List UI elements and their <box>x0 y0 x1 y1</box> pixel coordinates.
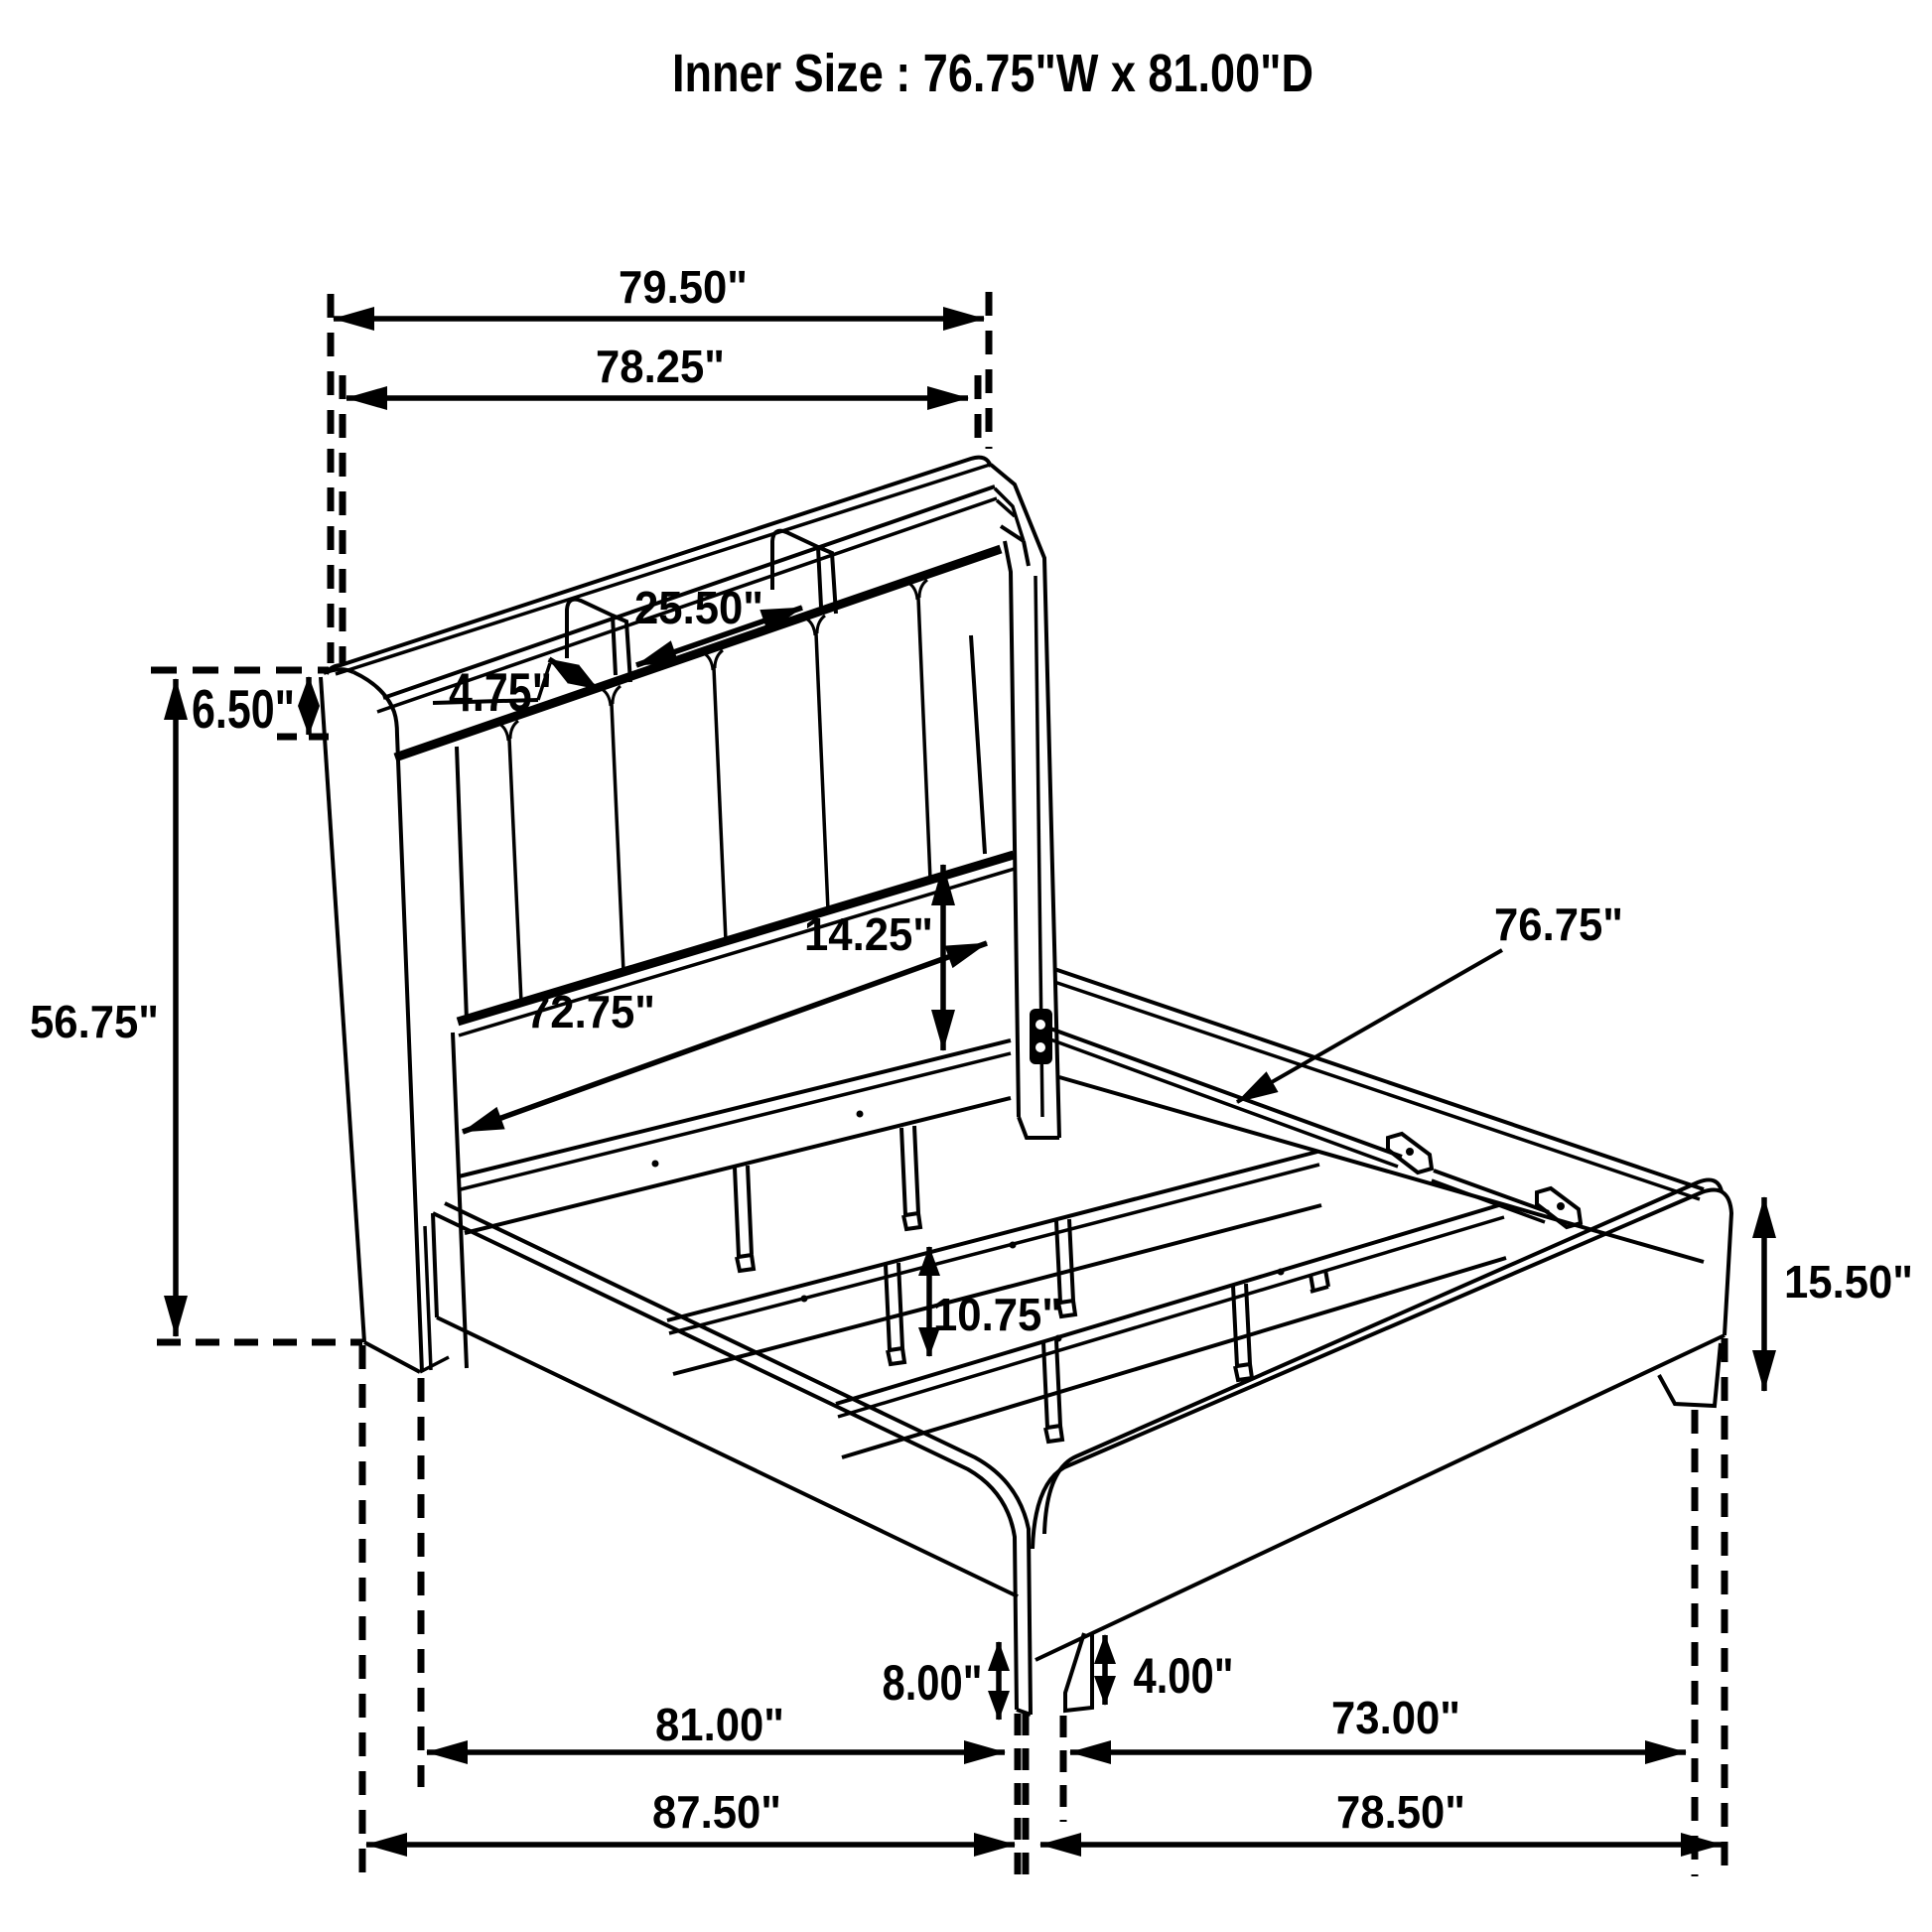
svg-text:56.75": 56.75" <box>30 996 159 1047</box>
svg-text:79.50": 79.50" <box>619 261 748 313</box>
svg-text:14.25": 14.25" <box>804 908 933 960</box>
svg-text:4.75": 4.75" <box>449 661 552 723</box>
svg-text:15.50": 15.50" <box>1784 1256 1913 1308</box>
svg-text:76.75": 76.75" <box>1494 898 1623 950</box>
svg-text:25.50": 25.50" <box>634 582 763 633</box>
svg-text:78.50": 78.50" <box>1336 1786 1465 1838</box>
svg-text:87.50": 87.50" <box>652 1786 781 1838</box>
svg-text:10.75": 10.75" <box>933 1289 1062 1340</box>
svg-text:8.00": 8.00" <box>883 1655 983 1711</box>
svg-text:78.25": 78.25" <box>596 341 725 392</box>
svg-text:4.00": 4.00" <box>1134 1648 1234 1704</box>
svg-text:81.00": 81.00" <box>655 1699 784 1750</box>
svg-text:72.75": 72.75" <box>526 986 655 1037</box>
svg-text:73.00": 73.00" <box>1331 1692 1460 1743</box>
svg-text:6.50": 6.50" <box>192 678 295 740</box>
svg-text:Inner Size : 76.75"W x 81.00"D: Inner Size : 76.75"W x 81.00"D <box>672 44 1313 103</box>
